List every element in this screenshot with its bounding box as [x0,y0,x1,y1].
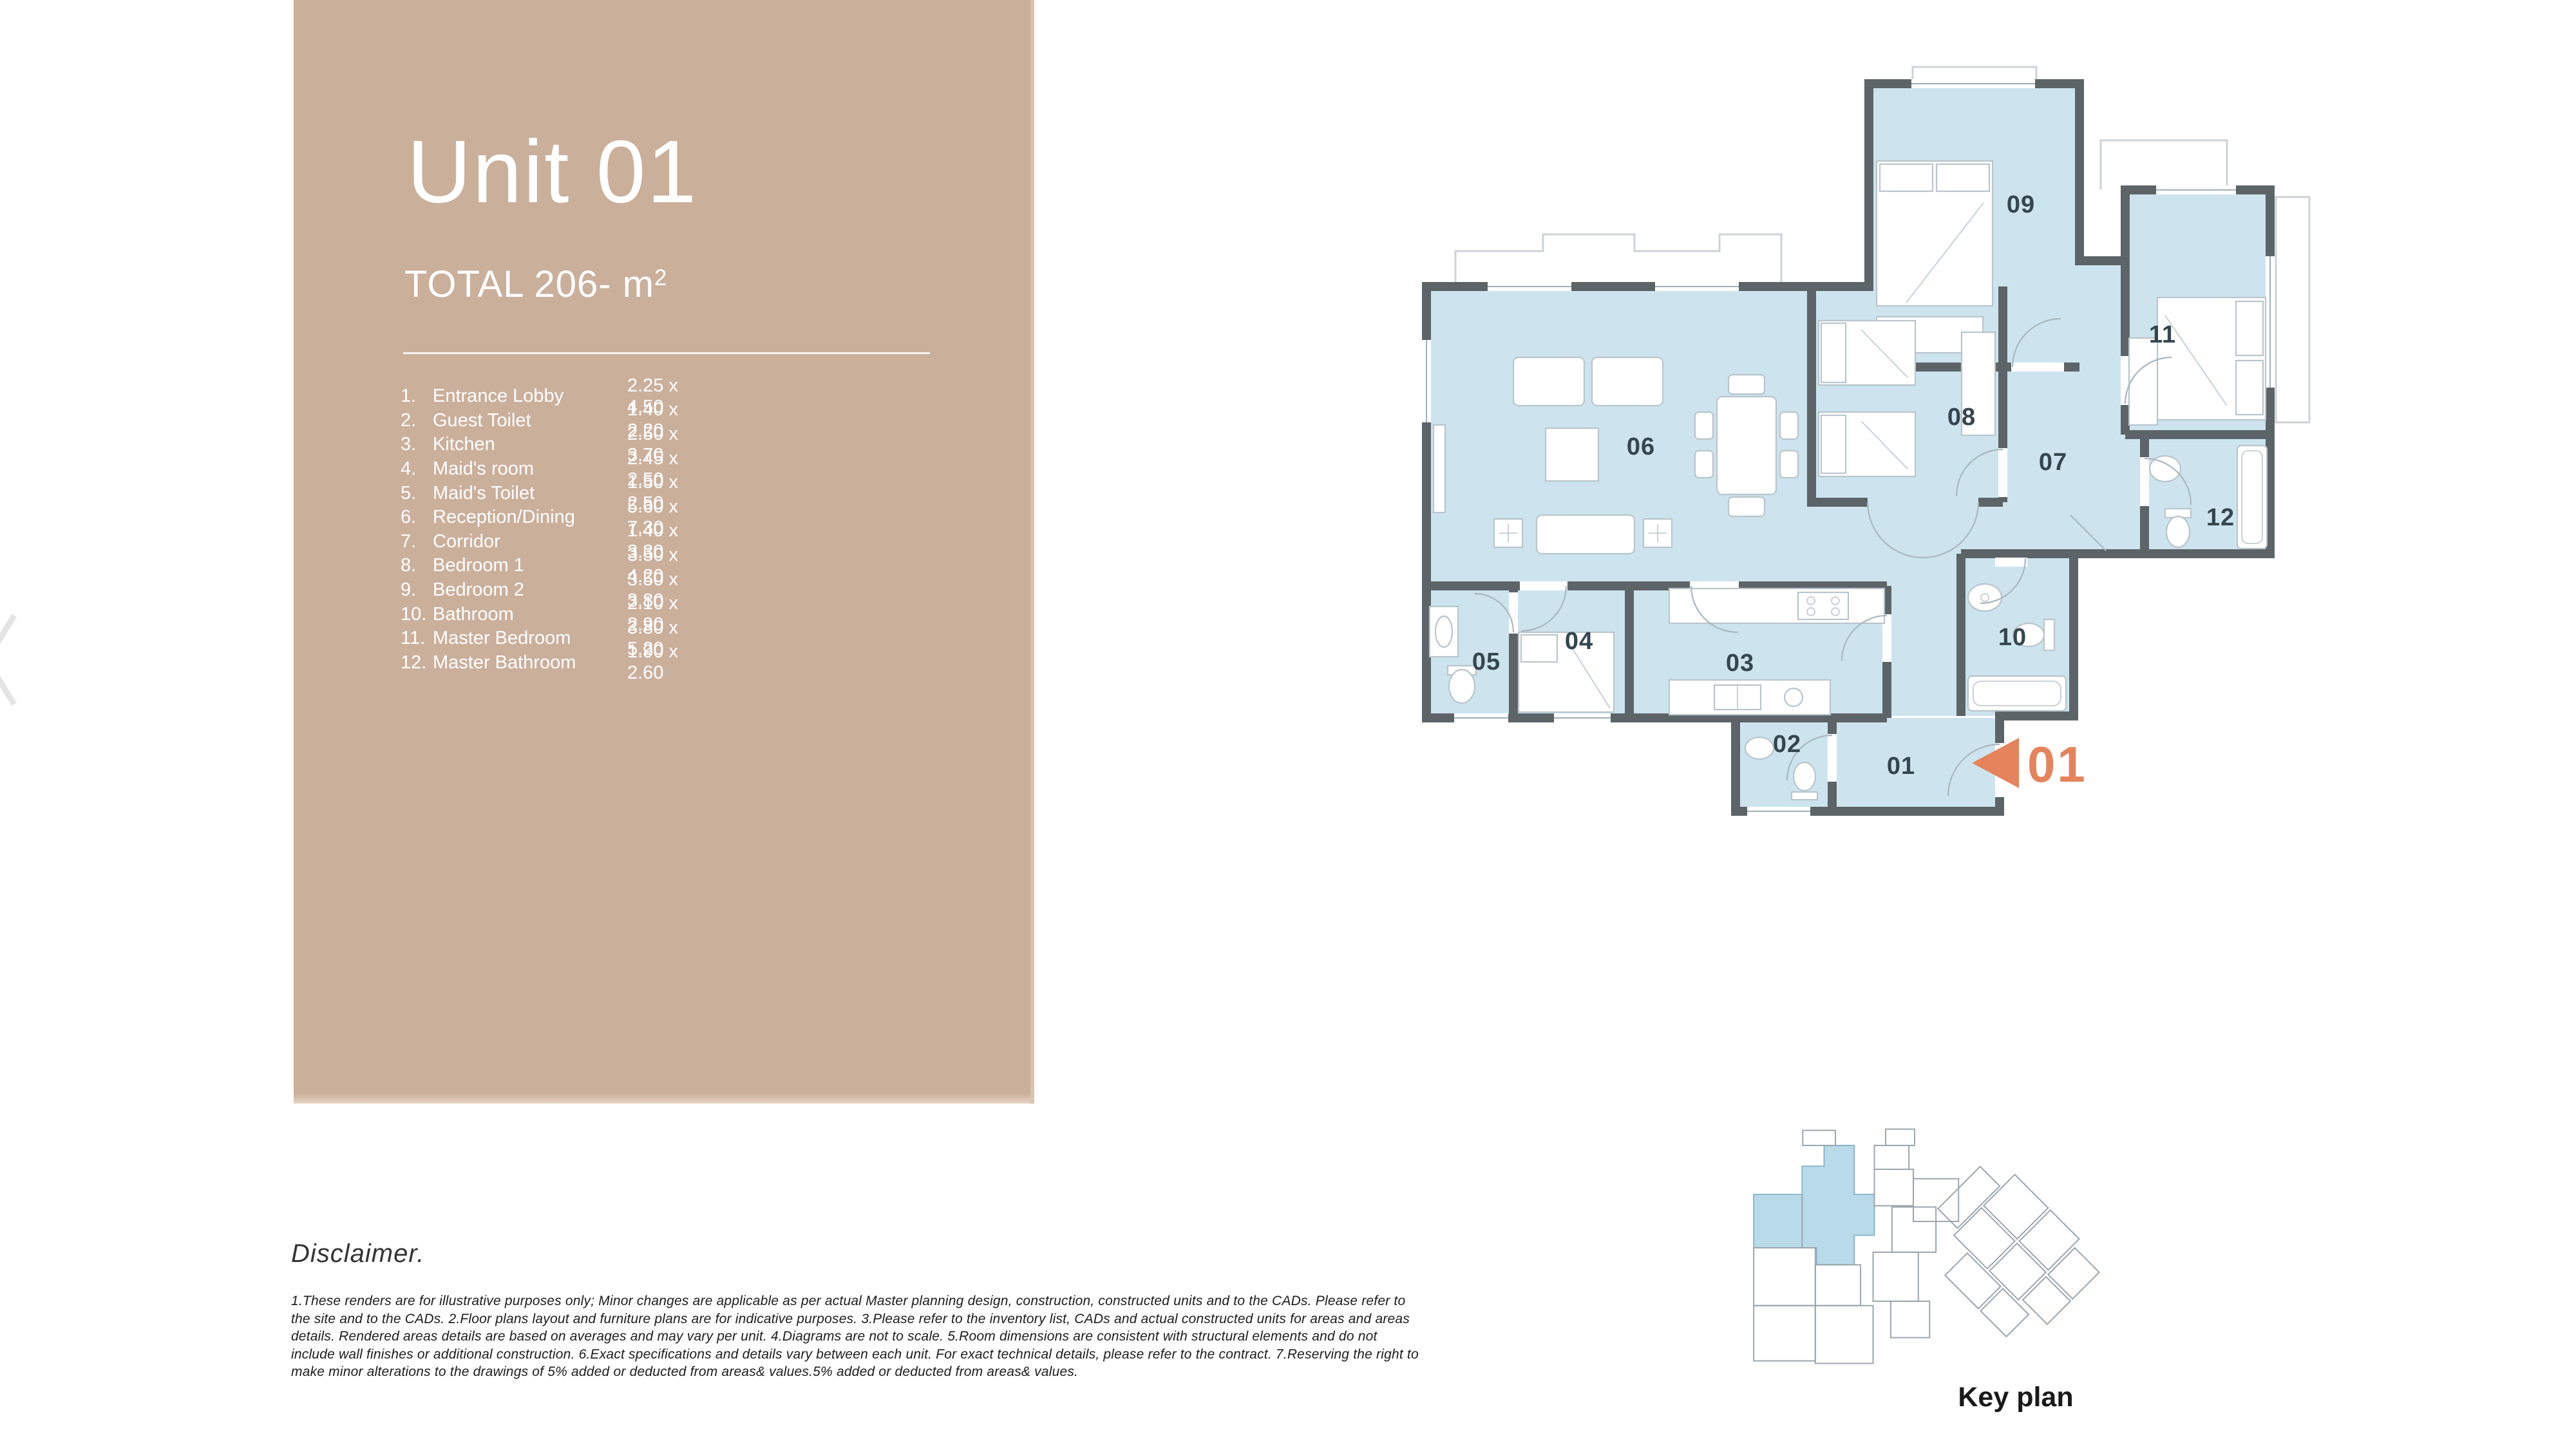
room-number: 8. [401,555,433,576]
room-number: 9. [401,579,433,601]
entrance-unit-number: 01 [2027,736,2087,793]
room-label-07: 07 [2039,449,2067,476]
bed-icon [1819,412,1915,476]
disclaimer-heading: Disclaimer. [291,1239,424,1268]
key-plan-drawing [1738,1119,2140,1377]
unit-info-panel: Unit 01 TOTAL 206- m2 1.Entrance Lobby2.… [294,0,1034,1104]
floor-plan: 01 02 03 04 05 06 07 08 09 10 11 12 01 [1417,64,2318,837]
coffee-table-icon [1546,428,1598,481]
key-plan [1738,1119,2140,1377]
room-name: Bedroom 2 [433,579,627,601]
disclaimer-line: 1.These renders are for illustrative pur… [291,1292,1419,1310]
room-list-item: 12.Master Bathroom1.90 x 2.60 [401,651,710,675]
room-name: Guest Toilet [433,410,627,431]
key-plan-diagonal-wing [1908,1153,2106,1351]
room-label-03: 03 [1726,650,1754,677]
room-number: 5. [401,483,433,504]
room-label-12: 12 [2206,504,2235,531]
bed-icon [2157,297,2266,420]
room-number: 7. [401,531,433,552]
disclaimer-line: details. Rendered areas details are base… [291,1328,1419,1346]
key-plan-label: Key plan [1919,1382,2112,1413]
room-name: Master Bedroom [433,628,627,649]
disclaimer-line: include wall finishes or additional cons… [291,1346,1419,1364]
room-number: 6. [401,507,433,528]
room-dimensions: 1.90 x 2.60 [627,641,710,684]
room-label-04: 04 [1565,628,1593,655]
room-number: 12. [401,652,433,673]
unit-total-area: TOTAL 206- m2 [404,263,667,306]
divider-line [403,352,930,354]
room-label-02: 02 [1773,731,1801,758]
bed-icon [1877,161,1993,306]
room-label-06: 06 [1627,433,1655,460]
unit-total-exponent: 2 [654,265,667,290]
room-name: Bedroom 1 [433,555,627,576]
room-name: Reception/Dining [433,507,627,528]
tv-console-icon [1434,425,1445,513]
disclaimer-line: the site and to the CADs. 2.Floor plans … [291,1310,1419,1328]
sofa-icon [1537,515,1634,554]
disclaimer-line: make minor alterations to the drawings o… [291,1363,1419,1381]
room-number: 11. [401,628,433,649]
room-name: Bathroom [433,604,627,625]
bed-icon [1819,321,1915,385]
room-name: Maid's Toilet [433,483,627,504]
room-name: Kitchen [433,434,627,455]
room-label-08: 08 [1947,404,1976,431]
page-edge-chevron-icon [0,612,17,708]
room-label-11: 11 [2149,321,2176,348]
room-number: 2. [401,410,433,431]
room-list: 1.Entrance Lobby2.25 x 4.50 2.Guest Toil… [401,384,710,675]
room-number: 1. [401,386,433,407]
wardrobe-icon [2129,338,2157,425]
room-name: Master Bathroom [433,652,627,673]
room-number: 3. [401,434,433,455]
unit-title: Unit 01 [407,127,697,216]
unit-total-text: TOTAL 206- m [404,263,654,305]
room-name: Corridor [433,531,627,552]
room-label-05: 05 [1472,648,1501,675]
room-number: 4. [401,458,433,480]
room-label-10: 10 [1998,624,2027,651]
floor-plan-drawing: 01 02 03 04 05 06 07 08 09 10 11 12 01 [1417,64,2318,837]
key-plan-highlighted-unit [1754,1145,1874,1265]
room-label-09: 09 [2007,191,2035,218]
room-number: 10. [401,604,433,625]
room-label-01: 01 [1887,753,1915,780]
room-name: Entrance Lobby [433,386,627,407]
disclaimer-text: 1.These renders are for illustrative pur… [291,1292,1419,1381]
room-name: Maid's room [433,458,627,480]
